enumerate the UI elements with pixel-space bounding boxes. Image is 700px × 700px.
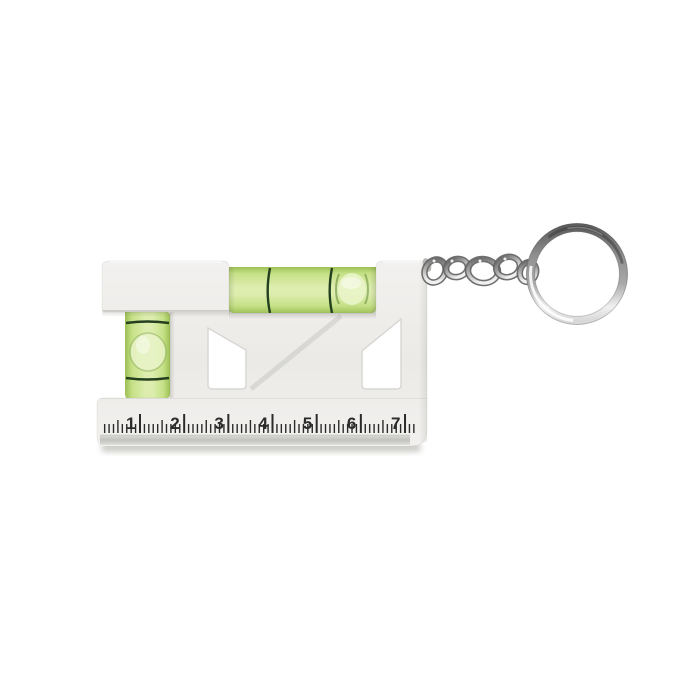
block-bottom-shadow	[102, 310, 230, 317]
ruler-tick	[338, 420, 339, 433]
ruler-tick	[320, 424, 321, 433]
ruler-tick	[378, 424, 379, 433]
ruler-tick	[232, 424, 233, 433]
bubble-highlight	[341, 277, 361, 289]
ruler-tick	[122, 424, 123, 433]
ruler-number: 1	[126, 414, 135, 433]
ruler-tick	[108, 424, 109, 433]
ruler-tick	[117, 420, 118, 433]
chain-glint	[451, 260, 454, 263]
ruler-tick	[342, 424, 343, 433]
vial-seat-shadow	[229, 313, 376, 319]
ruler-tick	[197, 424, 198, 433]
ruler-number: 6	[347, 414, 356, 433]
ruler-tick	[334, 424, 335, 433]
ruler-tick	[382, 420, 383, 433]
ruler-tick	[298, 424, 299, 433]
vial-end-crease	[370, 267, 376, 313]
ruler-tick	[144, 424, 145, 433]
horizontal-vial	[222, 267, 390, 314]
spirit-level-keychain: 1234567	[0, 0, 700, 700]
ruler-tick	[329, 424, 330, 433]
ruler-tick	[113, 424, 114, 433]
ruler-tick	[387, 424, 388, 433]
ruler-tick	[104, 424, 105, 433]
bubble-highlight	[136, 336, 150, 354]
ruler-tick	[183, 414, 185, 433]
right-edge-shade	[419, 264, 427, 442]
ruler-tick	[188, 424, 189, 433]
ruler-tick	[241, 424, 242, 433]
ruler-tick	[201, 424, 202, 433]
vertical-vial	[125, 303, 170, 400]
product-photo: 1234567	[0, 0, 700, 700]
ruler-tick	[210, 424, 211, 433]
vial-end-crease	[229, 267, 235, 313]
ruler-tick	[409, 424, 410, 433]
chain-glint	[504, 258, 507, 261]
ruler-tick	[254, 424, 255, 433]
ruler-tick	[316, 414, 318, 433]
ruler-tick	[139, 414, 141, 433]
ruler-tick	[245, 424, 246, 433]
ruler-tick	[161, 420, 162, 433]
ruler-number: 3	[214, 414, 223, 433]
ruler-tick	[294, 420, 295, 433]
ruler-tick	[192, 424, 193, 433]
ruler-tick	[148, 424, 149, 433]
column-crease	[170, 312, 175, 398]
ruler-tick	[250, 420, 251, 433]
ruler-tick	[365, 424, 366, 433]
ruler-tick	[325, 424, 326, 433]
ruler-tick	[153, 424, 154, 433]
ruler-tick	[236, 424, 237, 433]
level-bubble	[130, 333, 166, 371]
ruler-tick	[289, 424, 290, 433]
ruler-tick	[413, 424, 414, 433]
ruler-number: 4	[259, 414, 269, 433]
ruler-tick	[206, 420, 207, 433]
ruler-tick	[281, 424, 282, 433]
ruler-number: 7	[391, 414, 400, 433]
metal-strip	[100, 435, 410, 446]
ruler-tick	[285, 424, 286, 433]
ruler-tick	[373, 424, 374, 433]
ruler-tick	[272, 414, 274, 433]
ruler-tick	[157, 424, 158, 433]
ruler-tick	[369, 424, 370, 433]
ruler-tick	[360, 414, 362, 433]
ruler-number: 5	[303, 414, 312, 433]
ruler-tick	[276, 424, 277, 433]
chain-glint	[433, 260, 436, 263]
ruler-tick	[227, 414, 229, 433]
ruler-number: 2	[170, 414, 179, 433]
ruler-tick	[166, 424, 167, 433]
ruler-tick	[404, 414, 406, 433]
chain-glint	[479, 260, 482, 263]
